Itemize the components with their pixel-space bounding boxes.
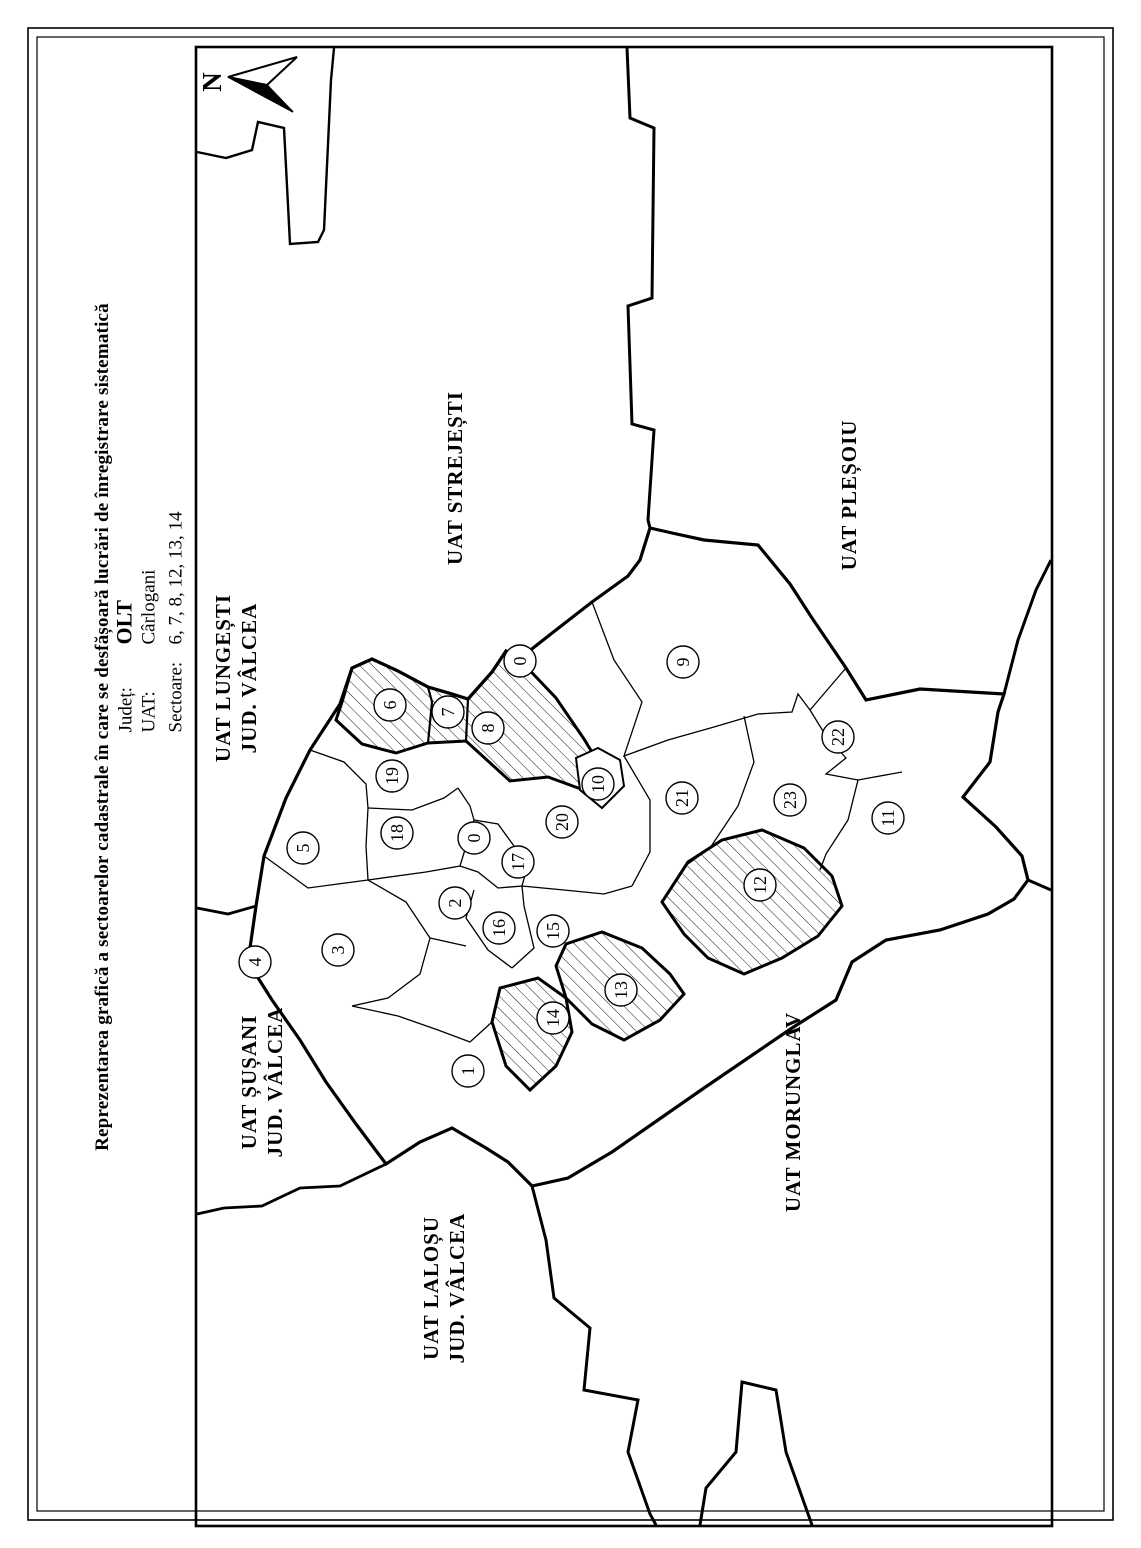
svg-text:21: 21 (672, 789, 692, 807)
field-value: 6, 7, 8, 12, 13, 14 (166, 512, 187, 645)
neighbor-label-uat-plesoiu: UAT PLEȘOIU (836, 420, 862, 571)
field-label: UAT: (139, 645, 161, 733)
svg-text:18: 18 (387, 824, 407, 842)
sector-marker-13: 13 (605, 974, 637, 1006)
sector-marker-23: 23 (774, 784, 806, 816)
sector-marker-1: 1 (452, 1055, 484, 1087)
boundary-lalosu-morunglav (532, 1186, 656, 1525)
map-canvas: 067891918010201721222311125234161513141 (0, 0, 1141, 1548)
svg-text:10: 10 (588, 775, 608, 793)
svg-text:13: 13 (611, 981, 631, 999)
svg-text:15: 15 (543, 922, 563, 940)
svg-text:11: 11 (878, 809, 898, 826)
uat-carlogani-boundary (248, 528, 1028, 1186)
sector-marker-12: 12 (744, 869, 776, 901)
neighbor-label-uat-strejesti: UAT STREJEȘTI (442, 391, 468, 565)
sector-marker-4: 4 (239, 946, 271, 978)
sector-marker-19: 19 (376, 760, 408, 792)
field-label: Sectoare: (166, 645, 188, 733)
svg-text:8: 8 (478, 724, 498, 733)
boundary-strejesti-plesoiu (627, 48, 654, 528)
svg-text:7: 7 (438, 708, 458, 717)
field-label: Județ: (116, 645, 138, 733)
svg-text:9: 9 (673, 658, 693, 667)
field-row-0: Județ:OLT (112, 468, 139, 733)
document-fields: Județ:OLTUAT:CârloganiSectoare:6, 7, 8, … (112, 468, 193, 733)
north-arrow-icon (228, 57, 297, 112)
document-page: 067891918010201721222311125234161513141 … (0, 0, 1141, 1548)
svg-text:0: 0 (510, 657, 530, 666)
sector-marker-11: 11 (872, 802, 904, 834)
sector-marker-22: 22 (822, 721, 854, 753)
boundary-susani-lalosu (197, 1164, 386, 1214)
sector-marker-6: 6 (374, 689, 406, 721)
field-row-2: Sectoare:6, 7, 8, 12, 13, 14 (166, 468, 193, 733)
boundary-morunglav-meander (700, 1382, 812, 1525)
boundary-lungesti-susani (197, 906, 256, 914)
neighbor-label-uat-lalosu: UAT LALOȘU JUD. VÂLCEA (418, 1213, 471, 1364)
sector-marker-17: 17 (502, 846, 534, 878)
svg-text:22: 22 (828, 728, 848, 746)
boundary-plesoiu-morunglav (1028, 880, 1051, 890)
field-row-1: UAT:Cârlogani (139, 468, 166, 733)
sector-marker-10: 10 (582, 768, 614, 800)
neighbor-label-uat-susani: UAT ȘUȘANI JUD. VÂLCEA (236, 1007, 289, 1158)
svg-text:17: 17 (508, 853, 528, 871)
sector-marker-3: 3 (322, 934, 354, 966)
svg-text:16: 16 (489, 919, 509, 937)
sector-marker-0: 0 (458, 822, 490, 854)
svg-text:14: 14 (543, 1009, 563, 1027)
field-value: Cârlogani (139, 570, 160, 645)
sector-marker-16: 16 (483, 912, 515, 944)
sector-marker-9: 9 (667, 646, 699, 678)
svg-text:2: 2 (445, 899, 465, 908)
sector-marker-2: 2 (439, 887, 471, 919)
north-label: N (196, 72, 230, 92)
sector-marker-7: 7 (432, 696, 464, 728)
sector-marker-0: 0 (504, 645, 536, 677)
svg-text:0: 0 (464, 834, 484, 843)
svg-text:6: 6 (380, 701, 400, 710)
neighbor-label-uat-lungesti: UAT LUNGEȘTI JUD. VÂLCEA (210, 594, 263, 762)
sector-marker-8: 8 (472, 712, 504, 744)
sector-marker-14: 14 (537, 1002, 569, 1034)
neighbor-label-uat-morunglav: UAT MORUNGLAV (780, 1012, 806, 1212)
sector-marker-5: 5 (287, 832, 319, 864)
sector-marker-21: 21 (666, 782, 698, 814)
field-value: OLT (112, 600, 137, 644)
svg-text:23: 23 (780, 791, 800, 809)
svg-text:20: 20 (552, 813, 572, 831)
svg-text:3: 3 (328, 946, 348, 955)
sector-marker-18: 18 (381, 817, 413, 849)
svg-text:1: 1 (458, 1067, 478, 1076)
svg-text:12: 12 (750, 876, 770, 894)
boundary-plesoiu-ne (1004, 560, 1051, 694)
sector-marker-20: 20 (546, 806, 578, 838)
svg-text:19: 19 (382, 767, 402, 785)
sector-marker-15: 15 (537, 915, 569, 947)
svg-text:4: 4 (245, 958, 265, 967)
svg-text:5: 5 (293, 844, 313, 853)
